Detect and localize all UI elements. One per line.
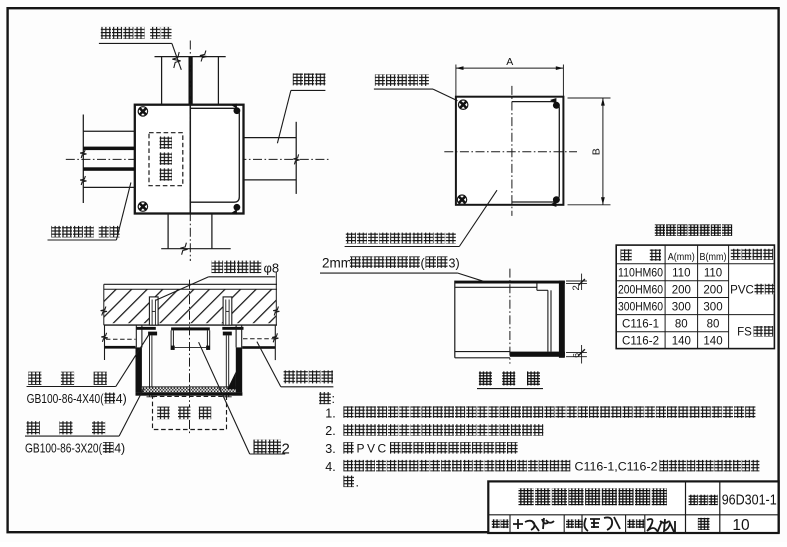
svg-text:200HM60: 200HM60 [618,285,663,297]
svg-text:300: 300 [672,301,691,313]
svg-text:140: 140 [703,336,722,348]
svg-text:φ8: φ8 [264,260,280,275]
svg-text:3.: 3. [325,442,335,456]
svg-text:B(mm): B(mm) [700,251,727,263]
svg-text:C116-1,C116-2: C116-1,C116-2 [575,459,658,473]
svg-text:4): 4) [116,392,127,406]
svg-text:6: 6 [571,353,581,358]
svg-text:GB100-86-4X40(: GB100-86-4X40( [27,392,105,406]
svg-text:PVC: PVC [357,442,389,456]
svg-text:80: 80 [707,319,720,331]
svg-text:A(mm): A(mm) [668,251,695,263]
svg-text:4.: 4. [325,460,335,474]
svg-text:300: 300 [703,301,722,313]
svg-text:110HM60: 110HM60 [618,268,663,280]
svg-text:B: B [591,148,603,155]
svg-text:110: 110 [704,268,722,280]
svg-text:3): 3) [449,256,460,270]
svg-text:80: 80 [675,319,688,331]
svg-text:140: 140 [672,336,691,348]
svg-text:96D301-1: 96D301-1 [722,493,777,509]
svg-text:A: A [506,56,513,68]
svg-text:4): 4) [114,442,125,456]
svg-text:2: 2 [571,285,582,290]
svg-text:200: 200 [703,285,722,297]
svg-text:300HM60: 300HM60 [618,301,663,313]
svg-text:2: 2 [282,440,290,457]
svg-text::: : [332,392,335,406]
svg-text:200: 200 [672,285,691,297]
svg-text:C116-2: C116-2 [622,336,659,348]
svg-text:.: . [356,476,359,490]
svg-text:GB100-86-3X20(: GB100-86-3X20( [25,442,103,456]
svg-text:1.: 1. [325,406,335,420]
svg-text:10: 10 [732,517,750,534]
svg-text:FS: FS [737,327,752,339]
svg-text:110: 110 [672,268,690,280]
svg-text:2mm: 2mm [322,255,352,270]
svg-text:PVC: PVC [730,285,754,297]
svg-text:2.: 2. [325,424,335,438]
svg-text:C116-1: C116-1 [622,319,659,331]
